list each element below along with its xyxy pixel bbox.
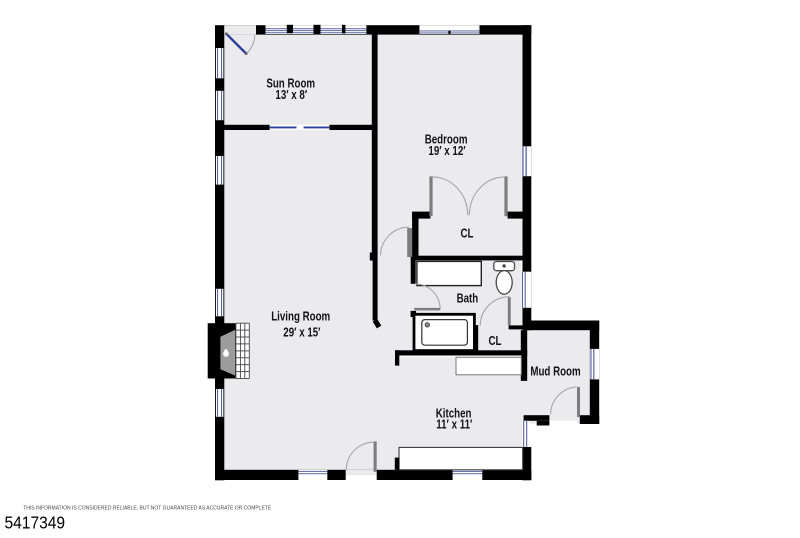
svg-text:CL: CL [461, 228, 474, 242]
svg-text:13′ x 8′: 13′ x 8′ [275, 89, 307, 103]
svg-text:11′ x 11′: 11′ x 11′ [436, 419, 472, 433]
svg-text:Mud Room: Mud Room [530, 365, 580, 379]
svg-text:Bath: Bath [457, 292, 479, 306]
svg-text:Living Room: Living Room [271, 310, 330, 324]
svg-text:THIS INFORMATION IS CONSIDERED: THIS INFORMATION IS CONSIDERED RELIABLE,… [23, 506, 272, 512]
svg-text:19′ x 12′: 19′ x 12′ [428, 145, 465, 159]
svg-text:CL: CL [489, 335, 502, 349]
svg-text:29′ x 15′: 29′ x 15′ [283, 326, 320, 340]
svg-text:5417349: 5417349 [5, 513, 66, 533]
